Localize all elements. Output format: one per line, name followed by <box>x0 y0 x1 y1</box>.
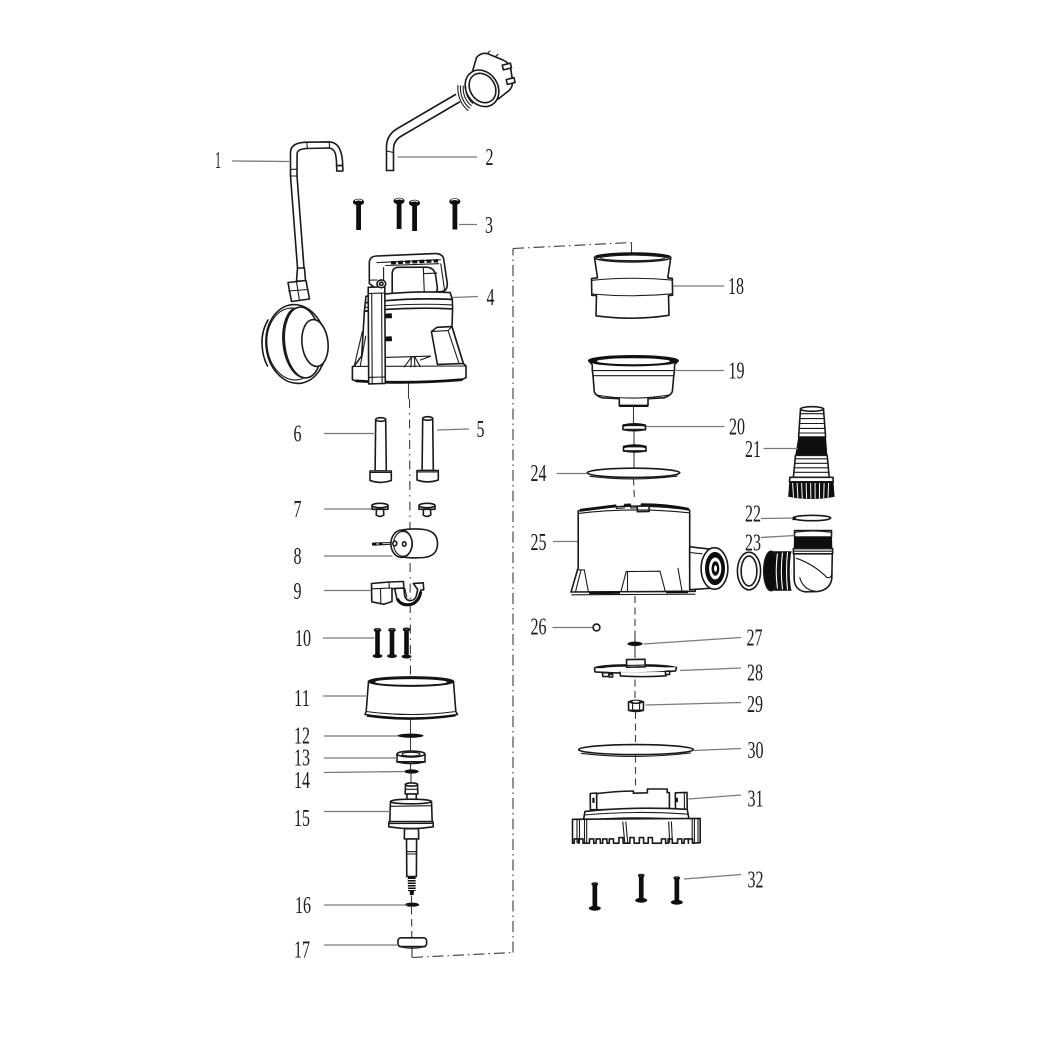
svg-text:2: 2 <box>486 145 494 171</box>
svg-text:24: 24 <box>531 461 547 487</box>
svg-text:6: 6 <box>294 422 302 448</box>
svg-text:5: 5 <box>477 417 485 443</box>
svg-text:27: 27 <box>747 626 763 652</box>
svg-text:11: 11 <box>294 686 310 712</box>
svg-text:8: 8 <box>294 544 302 570</box>
svg-text:4: 4 <box>487 285 495 311</box>
svg-text:19: 19 <box>729 359 745 385</box>
svg-text:26: 26 <box>531 615 547 641</box>
svg-text:16: 16 <box>295 893 311 919</box>
svg-text:1: 1 <box>215 148 221 174</box>
svg-text:15: 15 <box>294 806 310 832</box>
svg-text:20: 20 <box>729 415 745 441</box>
svg-text:21: 21 <box>745 437 761 463</box>
svg-text:9: 9 <box>294 579 302 605</box>
svg-text:17: 17 <box>294 938 310 964</box>
svg-text:23: 23 <box>745 531 761 557</box>
svg-text:3: 3 <box>485 213 493 239</box>
svg-text:28: 28 <box>747 661 763 687</box>
svg-text:14: 14 <box>294 768 310 794</box>
svg-text:10: 10 <box>295 626 311 652</box>
svg-text:25: 25 <box>531 530 547 556</box>
svg-text:18: 18 <box>728 274 744 300</box>
svg-text:31: 31 <box>748 787 764 813</box>
svg-text:7: 7 <box>294 497 302 523</box>
svg-text:30: 30 <box>748 738 764 764</box>
svg-text:32: 32 <box>748 868 764 894</box>
svg-text:29: 29 <box>747 692 763 718</box>
svg-text:22: 22 <box>745 502 761 528</box>
